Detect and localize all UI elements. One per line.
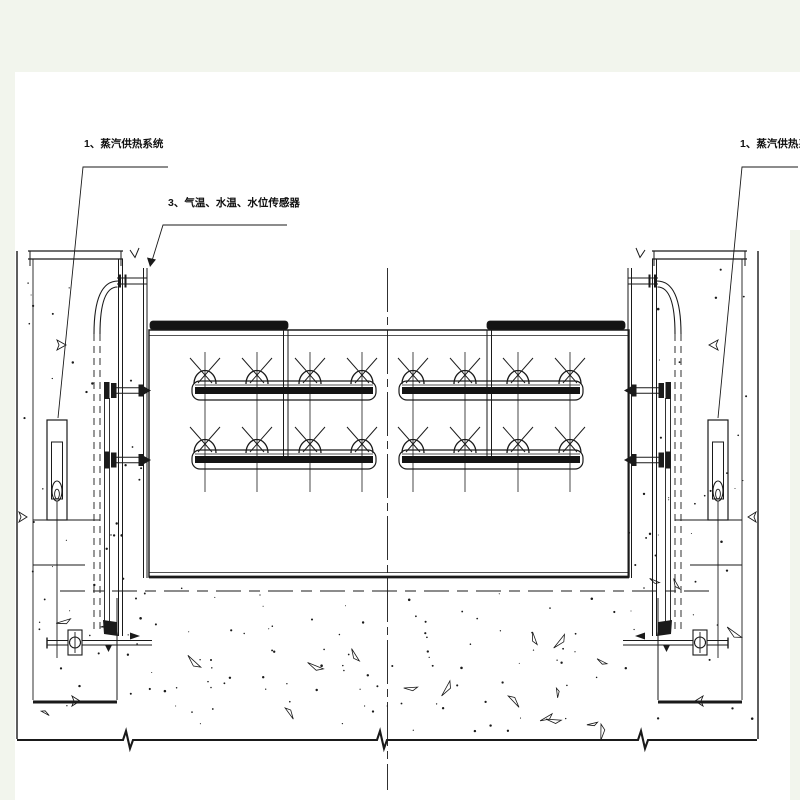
water-level-sensor [47, 420, 67, 658]
ground-line [17, 731, 757, 749]
engineering-section-drawing [0, 0, 800, 800]
gate-body [149, 321, 629, 577]
label-steam-system-left: 1、蒸汽供热系统 [84, 139, 163, 150]
drain-pipe-valve [47, 620, 152, 655]
flange-bolt-upper [105, 383, 152, 399]
header-pipe-left [150, 321, 288, 330]
leader-arrow-icon [147, 258, 156, 268]
concrete-texture [23, 269, 753, 741]
label-steam-system-right: 1、蒸汽供热系统 [740, 139, 800, 150]
weld-tick-icon [130, 248, 139, 258]
page: 1、蒸汽供热系统 3、气温、水温、水位传感器 1、蒸汽供热系统 [0, 0, 800, 800]
label-sensors: 3、气温、水温、水位传感器 [168, 198, 300, 209]
flange-bolt-lower [105, 452, 152, 468]
header-pipe-right [487, 321, 625, 330]
chip-mark-icon [19, 512, 27, 522]
left-pier [17, 248, 152, 739]
